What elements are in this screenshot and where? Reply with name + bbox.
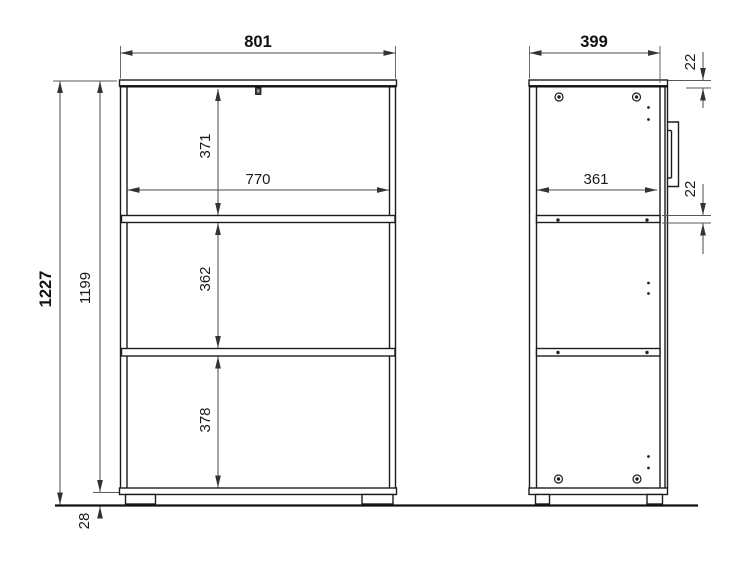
front-shelf-lower: [122, 349, 396, 357]
dim-label-top-panel-thickness: 22: [682, 54, 699, 71]
dim-label-bottom-compartment: 378: [197, 407, 214, 432]
dim-label-overall-height: 1227: [37, 271, 55, 308]
side-view: [529, 80, 679, 504]
dim-label-inner-depth: 361: [583, 171, 608, 188]
front-bottom-panel: [120, 488, 397, 495]
dim-label-plinth-height: 28: [76, 513, 93, 530]
dim-shelf-thickness: 22: [682, 181, 703, 254]
dim-label-shelf-thickness: 22: [682, 181, 699, 198]
dim-bottom-compartment: 378: [197, 357, 218, 488]
side-top-panel: [529, 80, 668, 86]
front-view: [120, 80, 397, 504]
side-shelf-upper: [537, 216, 661, 223]
side-bottom-panel: [529, 488, 668, 495]
dimensions: 801 399 1227 1199 28 770 3: [37, 33, 711, 529]
dim-inner-width: 770: [128, 171, 390, 190]
dim-label-overall-depth: 399: [580, 33, 608, 51]
dim-overall-width: 801: [121, 33, 396, 53]
front-foot-right: [362, 495, 393, 505]
side-foot-right: [647, 495, 663, 505]
dim-label-overall-width: 801: [244, 33, 272, 51]
dim-top-compartment: 371: [197, 89, 218, 215]
front-top-panel: [120, 80, 397, 86]
door-handle: [668, 122, 679, 187]
dim-overall-depth: 399: [530, 33, 661, 53]
dim-overall-height: 1227: [37, 81, 60, 505]
dim-middle-compartment: 362: [197, 223, 218, 348]
side-foot-left: [536, 495, 550, 505]
front-foot-left: [126, 495, 156, 505]
side-shelf-lower: [537, 349, 661, 357]
dim-top-panel-thickness: 22: [682, 52, 703, 108]
front-shelf-upper: [122, 216, 396, 223]
dim-body-height: 1199: [77, 81, 100, 492]
dim-plinth-height: 28: [76, 507, 100, 530]
dim-label-middle-compartment: 362: [197, 266, 214, 291]
technical-drawing: 801 399 1227 1199 28 770 3: [0, 0, 749, 562]
dim-inner-depth: 361: [537, 171, 657, 190]
screw-icons: [555, 93, 642, 483]
lock-highlight: [257, 90, 260, 93]
drill-hole-dots: [556, 106, 650, 469]
dim-label-top-compartment: 371: [197, 133, 214, 158]
dim-label-body-height: 1199: [77, 272, 94, 304]
drawing-canvas: 801 399 1227 1199 28 770 3: [0, 0, 749, 562]
dim-label-inner-width: 770: [245, 171, 270, 188]
